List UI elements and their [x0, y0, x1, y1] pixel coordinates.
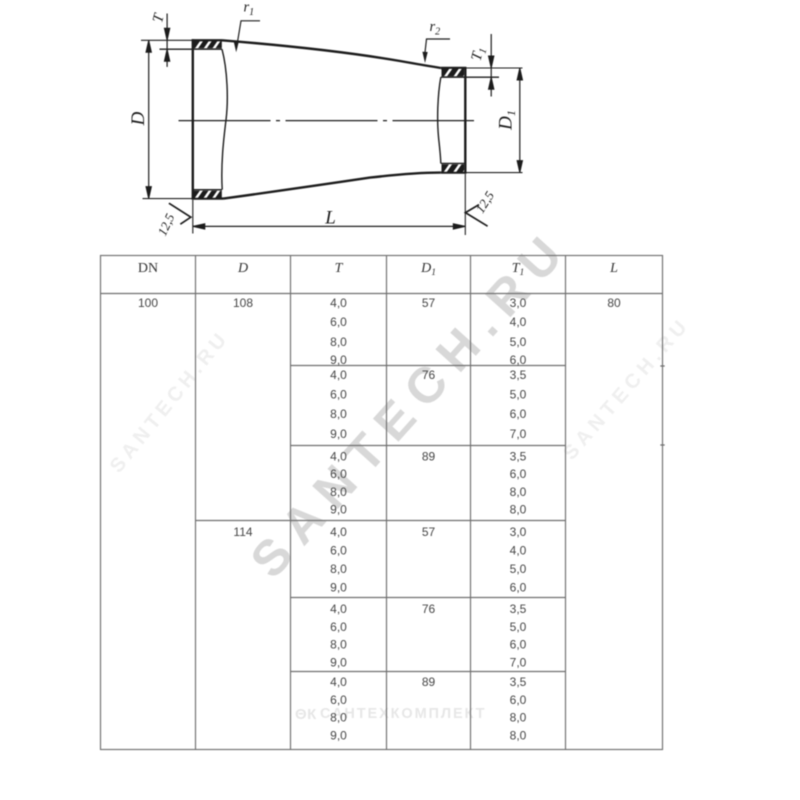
svg-text:8,0: 8,0 [330, 562, 347, 576]
svg-text:8,0: 8,0 [330, 335, 347, 349]
svg-text:89: 89 [422, 675, 436, 689]
svg-text:3,5: 3,5 [510, 602, 527, 616]
svg-text:3,5: 3,5 [510, 450, 527, 464]
svg-text:6,0: 6,0 [510, 407, 527, 421]
svg-text:SANTECH.RU: SANTECH.RU [559, 313, 694, 464]
svg-text:ΘК: ΘК [295, 706, 317, 723]
svg-text:7,0: 7,0 [510, 427, 527, 441]
svg-text:6,0: 6,0 [330, 693, 347, 707]
svg-text:8,0: 8,0 [510, 728, 527, 742]
svg-text:76: 76 [422, 602, 436, 616]
svg-text:T: T [150, 11, 168, 25]
svg-text:6,0: 6,0 [510, 638, 527, 652]
svg-text:4,0: 4,0 [330, 368, 347, 382]
svg-text:L: L [324, 208, 336, 229]
svg-text:6,0: 6,0 [510, 581, 527, 595]
svg-text:8,0: 8,0 [330, 638, 347, 652]
svg-text:12,5: 12,5 [472, 188, 497, 216]
svg-text:80: 80 [607, 296, 621, 310]
svg-text:D: D [128, 111, 149, 126]
svg-text:12,5: 12,5 [154, 211, 177, 238]
svg-text:6,0: 6,0 [510, 467, 527, 481]
svg-text:9,0: 9,0 [330, 728, 347, 742]
svg-text:3,0: 3,0 [510, 525, 527, 539]
svg-text:114: 114 [233, 525, 252, 539]
svg-text:8,0: 8,0 [330, 407, 347, 421]
svg-text:8,0: 8,0 [510, 485, 527, 499]
svg-text:4,0: 4,0 [510, 544, 527, 558]
svg-text:6,0: 6,0 [330, 315, 347, 329]
svg-text:SANTECH.RU: SANTECH.RU [106, 326, 234, 477]
svg-text:r1: r1 [244, 0, 255, 18]
svg-text:6,0: 6,0 [330, 544, 347, 558]
svg-text:100: 100 [138, 296, 158, 310]
svg-text:4,0: 4,0 [330, 675, 347, 689]
svg-text:6,0: 6,0 [330, 388, 347, 402]
svg-text:D1: D1 [495, 110, 518, 131]
svg-text:r2: r2 [430, 19, 441, 38]
svg-text:76: 76 [422, 368, 436, 382]
svg-text:D: D [237, 261, 248, 276]
svg-text:5,0: 5,0 [510, 335, 527, 349]
svg-text:5,0: 5,0 [510, 620, 527, 634]
svg-text:4,0: 4,0 [330, 525, 347, 539]
svg-text:6,0: 6,0 [330, 467, 347, 481]
svg-text:4,0: 4,0 [330, 602, 347, 616]
svg-text:T: T [335, 261, 344, 276]
svg-text:8,0: 8,0 [510, 503, 527, 517]
svg-text:9,0: 9,0 [330, 503, 347, 517]
svg-text:3,5: 3,5 [510, 368, 527, 382]
svg-text:9,0: 9,0 [330, 581, 347, 595]
svg-text:6,0: 6,0 [510, 693, 527, 707]
svg-text:57: 57 [422, 525, 436, 539]
svg-text:9,0: 9,0 [330, 427, 347, 441]
svg-text:89: 89 [422, 450, 436, 464]
svg-text:8,0: 8,0 [330, 711, 347, 725]
svg-text:5,0: 5,0 [510, 388, 527, 402]
svg-text:5,0: 5,0 [510, 562, 527, 576]
svg-text:3,0: 3,0 [510, 296, 527, 310]
svg-text:108: 108 [233, 296, 253, 310]
svg-text:T1: T1 [469, 45, 490, 63]
svg-text:3,5: 3,5 [510, 675, 527, 689]
svg-text:6,0: 6,0 [330, 620, 347, 634]
svg-text:L: L [609, 261, 618, 276]
svg-text:8,0: 8,0 [330, 485, 347, 499]
svg-text:6,0: 6,0 [510, 353, 527, 367]
svg-text:9,0: 9,0 [330, 655, 347, 669]
svg-text:8,0: 8,0 [510, 711, 527, 725]
svg-text:9,0: 9,0 [330, 353, 347, 367]
svg-text:4,0: 4,0 [330, 296, 347, 310]
svg-text:DN: DN [138, 261, 158, 276]
svg-text:4,0: 4,0 [510, 315, 527, 329]
svg-text:57: 57 [422, 296, 436, 310]
svg-text:4,0: 4,0 [330, 450, 347, 464]
svg-text:7,0: 7,0 [510, 655, 527, 669]
svg-text:D1: D1 [420, 261, 436, 278]
